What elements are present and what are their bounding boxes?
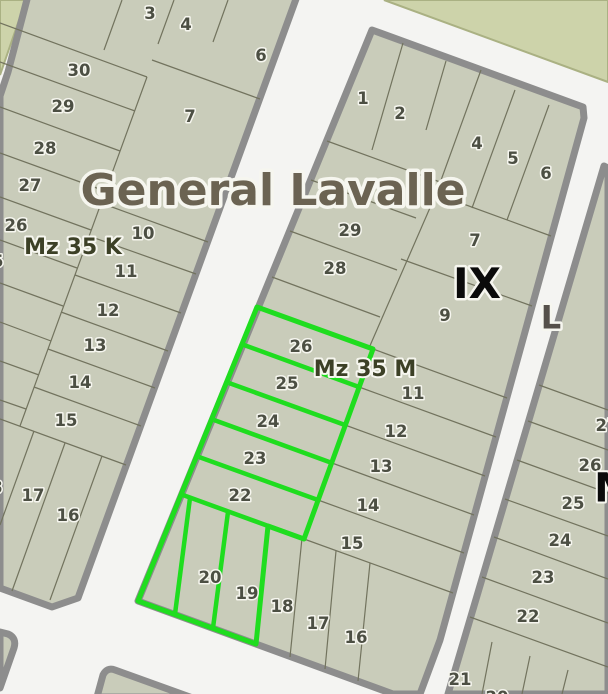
zone-label-ix: IX bbox=[453, 259, 501, 308]
lot-number: 26 bbox=[290, 337, 313, 356]
lot-number: 7 bbox=[184, 107, 195, 126]
lot-number: 15 bbox=[55, 411, 78, 430]
lot-number: 29 bbox=[52, 97, 75, 116]
lot-number: 23 bbox=[244, 449, 267, 468]
lot-number: 5 bbox=[507, 149, 518, 168]
map-viewport[interactable]: 3463029728272625101112131415181716124562… bbox=[0, 0, 608, 694]
lot-number: 1 bbox=[357, 89, 368, 108]
lot-number: 12 bbox=[385, 422, 408, 441]
lot-number: 17 bbox=[22, 486, 45, 505]
district-label-mz35k: Mz 35 K bbox=[24, 235, 123, 260]
lot-number: 22 bbox=[517, 607, 540, 626]
lot-number: 7 bbox=[469, 231, 480, 250]
lot-number: 10 bbox=[132, 224, 155, 243]
lot-number: 6 bbox=[255, 46, 266, 65]
map-canvas[interactable]: 3463029728272625101112131415181716124562… bbox=[0, 0, 608, 694]
street-label-l: L bbox=[541, 299, 561, 337]
lot-number: 15 bbox=[341, 534, 364, 553]
lot-number: 19 bbox=[236, 584, 259, 603]
lot-number: 30 bbox=[68, 61, 91, 80]
lot-number: 6 bbox=[540, 164, 551, 183]
lot-number: 16 bbox=[345, 628, 368, 647]
lot-number: 29 bbox=[339, 221, 362, 240]
zone-label-partial: M bbox=[594, 465, 608, 511]
lot-number: 21 bbox=[449, 670, 472, 689]
lot-number: 20 bbox=[199, 568, 222, 587]
lot-number: 22 bbox=[229, 486, 252, 505]
lot-number: 24 bbox=[549, 531, 572, 550]
lot-number: 3 bbox=[144, 4, 155, 23]
lot-number: 18 bbox=[0, 478, 2, 497]
lot-number: 25 bbox=[562, 494, 585, 513]
lot-number: 16 bbox=[57, 506, 80, 525]
lot-number: 2 bbox=[394, 104, 405, 123]
lot-number: 11 bbox=[402, 384, 425, 403]
lot-number: 14 bbox=[357, 496, 380, 515]
lot-number: 4 bbox=[180, 15, 191, 34]
lot-number: 13 bbox=[84, 336, 107, 355]
lot-number: 17 bbox=[307, 614, 330, 633]
map-title: General Lavalle bbox=[80, 165, 465, 216]
lot-number: 27 bbox=[596, 416, 608, 435]
lot-number: 11 bbox=[115, 262, 138, 281]
district-label-mz35m: Mz 35 M bbox=[314, 357, 417, 382]
lot-number: 23 bbox=[532, 568, 555, 587]
lot-number: 27 bbox=[19, 176, 42, 195]
lot-number: 28 bbox=[34, 139, 57, 158]
lot-number: 26 bbox=[5, 216, 28, 235]
lot-number: 4 bbox=[471, 134, 482, 153]
lot-number: 12 bbox=[97, 301, 120, 320]
lot-number: 28 bbox=[324, 259, 347, 278]
lot-number: 18 bbox=[271, 597, 294, 616]
lot-number: 25 bbox=[276, 374, 299, 393]
lot-number: 20 bbox=[486, 688, 509, 694]
lot-number: 25 bbox=[0, 252, 3, 271]
lot-number: 13 bbox=[370, 457, 393, 476]
lot-number: 24 bbox=[257, 412, 280, 431]
lot-number: 9 bbox=[439, 306, 450, 325]
lot-number: 14 bbox=[69, 373, 92, 392]
